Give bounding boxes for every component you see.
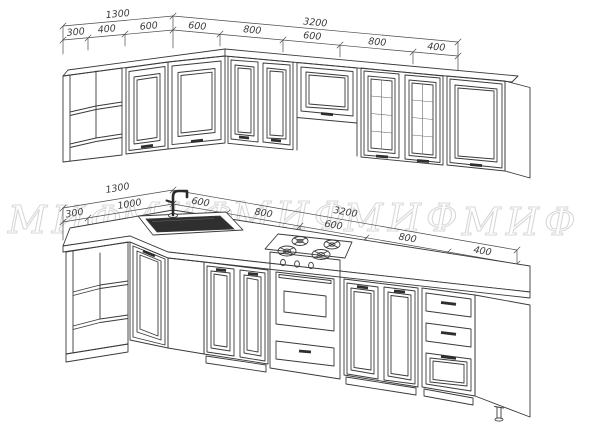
drawer-frame-inner: [433, 361, 464, 383]
upper-segment-dim-label: 800: [368, 36, 387, 49]
drawer-handle: [441, 303, 456, 305]
base-open-shelf-300: [66, 242, 128, 362]
door-frame: [134, 74, 160, 145]
door-panel: [347, 283, 378, 379]
door-handle: [248, 274, 258, 275]
upper-dimension-lines: 1300 3200 300 400 600 600 800 600 800 40…: [60, 8, 461, 70]
cabinet-face: [361, 68, 443, 165]
upper-end-cabinet-400: [447, 76, 530, 178]
door-handle: [321, 114, 333, 115]
base-cabinet-800-right: [344, 279, 418, 395]
cabinet-face: [126, 62, 168, 154]
glass-mullions: [371, 80, 392, 149]
upper-segment-dim-label: 600: [139, 20, 158, 33]
door-frame-inner: [181, 72, 212, 133]
niche-side-edges: [297, 118, 357, 157]
door-frame-inner: [140, 255, 158, 336]
door-frame: [137, 251, 161, 340]
door-frame: [178, 69, 215, 137]
upper-open-shelf-300: [63, 68, 122, 162]
cabinet-side-panel: [505, 81, 530, 178]
door-handle: [470, 165, 482, 166]
upper-total-dim-label: 1300: [105, 8, 130, 21]
door-handle: [417, 161, 429, 162]
drawer-handle: [441, 333, 456, 335]
door-frame: [455, 85, 497, 162]
cabinet-side-panel: [475, 295, 530, 417]
door-frame-inner: [309, 75, 345, 107]
door-handle: [394, 291, 405, 292]
drawer-frame: [430, 358, 467, 386]
door-frame-inner: [458, 88, 494, 159]
door-handle: [376, 156, 388, 157]
door-handle: [357, 287, 368, 289]
watermark-text: МИФ: [461, 200, 581, 244]
base-cabinet-800-left: [204, 262, 268, 372]
upper-cabinet-top-band: [63, 49, 518, 82]
door-handle: [191, 140, 203, 141]
door-frame-inner: [247, 278, 258, 352]
upper-cabinet-400: [126, 62, 168, 154]
drawer-base-unit-400: [422, 288, 530, 421]
door-handle: [141, 145, 153, 147]
drawer-handle: [441, 357, 456, 359]
drawer-front: [426, 293, 471, 317]
door-panel: [384, 287, 415, 384]
lower-total-dim-label: 1300: [105, 181, 131, 196]
upper-cabinet-run: [63, 49, 530, 178]
door-frame-inner: [214, 274, 227, 347]
door-frame-inner: [270, 71, 283, 136]
shelf-unit-outline: [66, 242, 128, 354]
upper-cabinet-800-double: [228, 56, 293, 150]
door-frame-inner: [137, 77, 157, 141]
upper-glass-cabinet-800: [361, 68, 443, 165]
upper-segment-dim-label: 600: [188, 20, 207, 33]
adjustable-leg: [495, 407, 504, 422]
upper-corner-cabinet-600: [168, 56, 225, 149]
upper-top-edge-caps: [63, 49, 518, 82]
upper-segment-dim-label: 300: [66, 26, 85, 39]
corner-filler-panel: [168, 258, 204, 354]
upper-segment-dim-label: 400: [97, 23, 116, 36]
shelf-board: [73, 281, 128, 296]
upper-liftup-cabinet-600: [297, 63, 357, 157]
upper-segment-dim-label: 400: [427, 41, 446, 54]
plinth: [206, 356, 266, 372]
upper-segment-dim-label: 600: [303, 30, 322, 43]
upper-total-dim-label: 3200: [303, 16, 328, 29]
door-handle: [239, 137, 249, 138]
range-drawer: [276, 341, 334, 366]
door-handle: [271, 140, 281, 141]
cabinet-face: [168, 56, 225, 149]
glass-mullions: [412, 84, 433, 154]
range-drawer-handle: [299, 351, 311, 352]
shelf-plinth: [66, 344, 128, 362]
sink-bowl: [146, 216, 234, 232]
oven-window: [284, 291, 326, 317]
door-frame-inner: [238, 68, 251, 133]
door-frame-inner: [391, 296, 408, 377]
cabinet-face: [447, 76, 505, 171]
plinth: [346, 377, 416, 395]
shelf-board: [73, 315, 128, 330]
upper-segment-dim-label: 800: [243, 24, 262, 37]
door-frame-inner: [354, 292, 371, 371]
kitchen-drawing-page: МИФ МИФ МИФ МИФ МИФ 1300 3200 300 400 60…: [0, 0, 600, 424]
door-handle: [216, 270, 226, 271]
kitchen-technical-drawing: МИФ МИФ МИФ МИФ МИФ 1300 3200 300 400 60…: [0, 0, 600, 424]
drawer-front: [426, 323, 471, 347]
